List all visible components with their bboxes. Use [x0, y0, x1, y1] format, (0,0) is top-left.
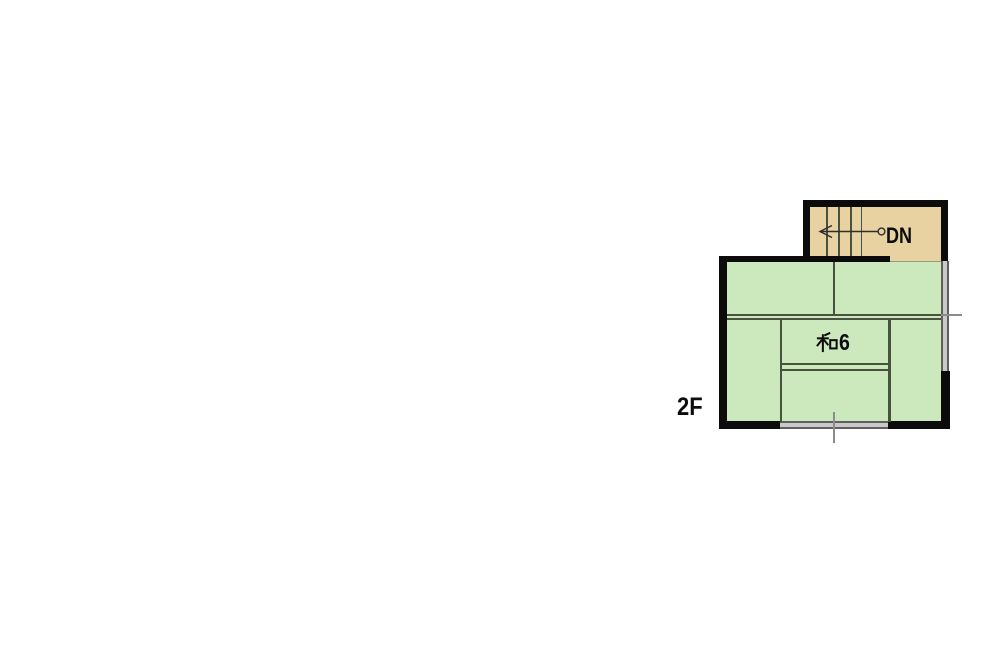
room-divider-line-lower [727, 318, 941, 320]
wall-room-right-lower [941, 371, 950, 429]
section-tick-bottom [833, 412, 835, 443]
section-tick-right [941, 314, 962, 316]
wall-stairs-left [803, 200, 810, 257]
floor-plan-canvas: DN 2F 6 [0, 0, 1002, 647]
sliding-door-line-lower [782, 369, 889, 371]
window-right [941, 261, 949, 371]
floor-label: 2F [677, 395, 703, 419]
closet-partition-right [888, 320, 891, 422]
stairs-opening-edge [890, 261, 941, 262]
stairs-direction-label: DN [886, 225, 912, 246]
wall-room-top [719, 256, 890, 262]
room-divider-line-upper [727, 314, 941, 316]
wall-room-left [719, 256, 727, 429]
sliding-door-line-upper [782, 363, 889, 365]
stairs-down-arrow-icon [814, 221, 889, 242]
wall-room-bottom-left [719, 421, 780, 429]
room-label-washitsu-6: 6 [816, 331, 852, 353]
wall-stairs-top [803, 200, 948, 207]
wall-stairs-right [941, 200, 948, 261]
hall-partition-line [833, 262, 835, 314]
room-size-number: 6 [839, 331, 850, 353]
kanji-wa-glyph [816, 331, 838, 353]
